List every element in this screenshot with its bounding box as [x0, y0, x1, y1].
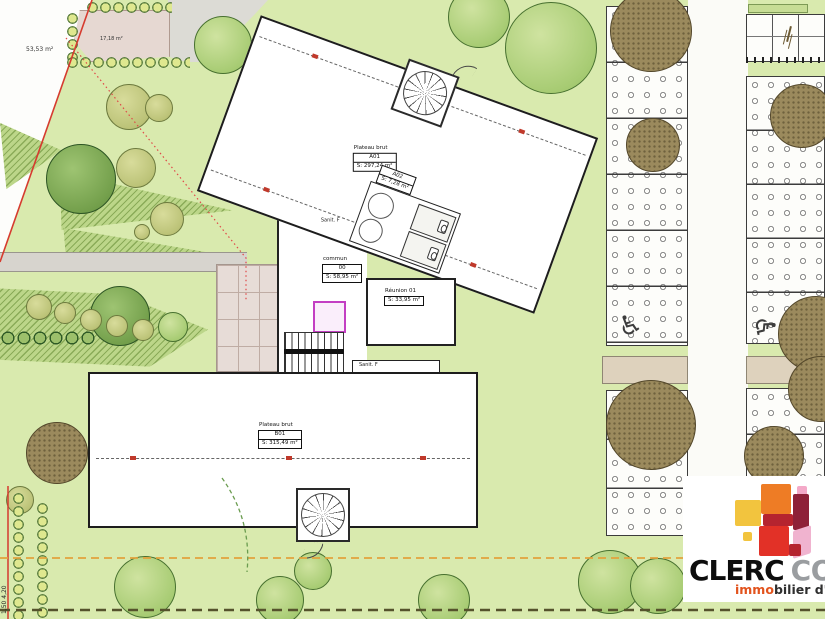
tree-icon [158, 312, 188, 342]
joint-mark [518, 129, 525, 135]
plateau-B-label: Plateau brut B01 S: 315,49 m² [258, 422, 302, 449]
carport-posts [746, 57, 825, 63]
joint-mark [312, 53, 319, 59]
logo-mark-icon [735, 484, 813, 558]
tree-icon [294, 552, 332, 590]
tree-icon [145, 94, 173, 122]
tree-icon [46, 144, 116, 214]
dimension-label: 1,50 4,20 [1, 585, 8, 614]
joint-mark [286, 456, 292, 460]
hedge-row-icon [0, 330, 96, 346]
joint-mark [130, 456, 136, 460]
clerc-conseil-logo: CLERC CONSEIL immobilier d'entreprise [683, 476, 825, 602]
wc-turning-circle [355, 215, 386, 246]
terrace [216, 264, 278, 372]
tree-icon [626, 118, 680, 172]
tree-icon [418, 574, 470, 619]
expansion-joint [96, 458, 470, 459]
tree-icon [132, 319, 154, 341]
joint-mark [263, 187, 270, 193]
hedge-row-icon [86, 1, 172, 14]
parking-lane [688, 0, 748, 546]
hedge-row-icon [12, 492, 25, 619]
logo-tagline: immobilier d'entreprise [735, 582, 825, 597]
joint-mark [420, 456, 426, 460]
tree-icon [106, 315, 128, 337]
carport-shelter [746, 14, 825, 62]
carport-green-strip [748, 4, 808, 13]
garden-patio-area-label: 17,18 m² [100, 36, 123, 42]
tree-icon [606, 380, 696, 470]
hedge-row-icon [36, 502, 49, 619]
sanit-B-name: Sanit. F [359, 362, 378, 368]
meeting-room-label: Réunion 01 S: 33,95 m² [384, 288, 424, 306]
accessible-parking-icon: ♿ [750, 314, 779, 340]
tree-icon [630, 558, 686, 614]
hedge-row-icon [66, 12, 79, 60]
access-road [0, 252, 247, 272]
tree-icon [505, 2, 597, 94]
parcel-left-area-label: 53,53 m² [26, 46, 53, 53]
spiral-stair-icon [390, 59, 459, 128]
sanit-A-label: A02 S: 7,28 m² [376, 165, 417, 195]
tree-icon [448, 0, 510, 48]
sanit-A-name: Sanit. F [321, 217, 340, 223]
site-plan: 53,53 m² 17,18 m² ♿ ♿ [0, 0, 825, 619]
stair-landing-bar [284, 349, 344, 354]
tree-icon [770, 84, 825, 148]
tree-icon [26, 294, 52, 320]
tree-icon [134, 224, 150, 240]
hedge-row-icon [66, 56, 190, 69]
tree-icon [114, 556, 176, 618]
joint-mark [470, 262, 477, 268]
tree-icon [256, 576, 304, 619]
building-B: Plateau brut B01 S: 315,49 m² [88, 372, 478, 528]
tree-icon [116, 148, 156, 188]
tree-icon [80, 309, 102, 331]
commun-label: commun 00 S: 58,95 m² [322, 256, 362, 283]
elevator [313, 301, 346, 333]
tree-icon [26, 422, 88, 484]
tree-icon [150, 202, 184, 236]
spiral-stair-icon [296, 488, 350, 542]
tree-icon [54, 302, 76, 324]
wc-turning-circle [364, 189, 397, 222]
